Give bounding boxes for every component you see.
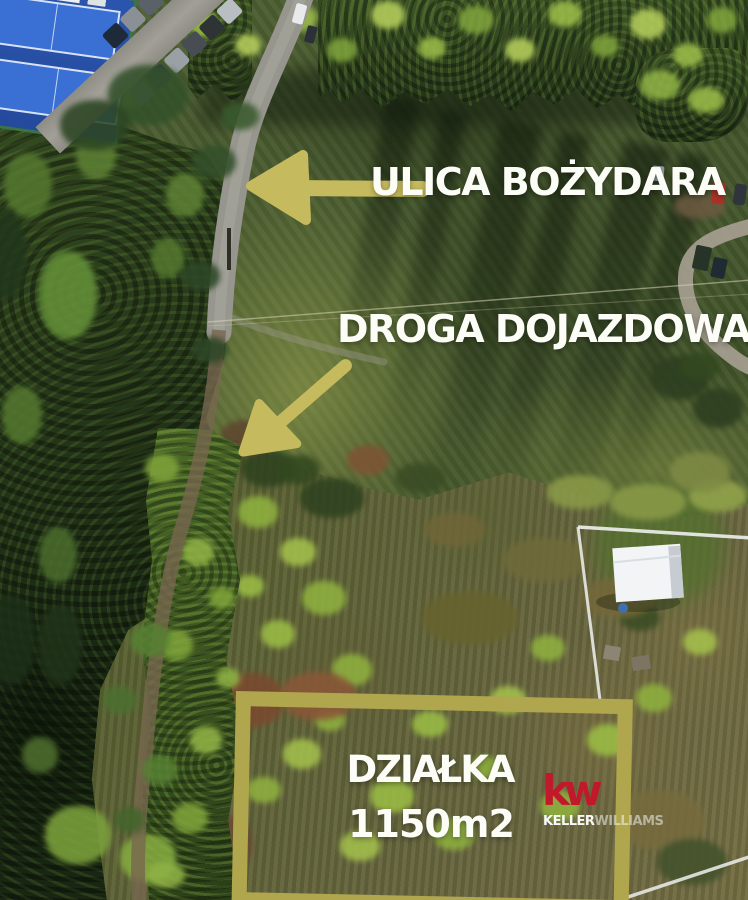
kw-brand-second: WILLIAMS (594, 814, 663, 829)
street-label: ULICA BOŻYDARA (370, 160, 725, 204)
kw-logo-wordmark: KELLERWILLIAMS (543, 814, 663, 829)
plot-label: DZIAŁKA (346, 748, 513, 791)
aerial-photo: ULICA BOŻYDARA DROGA DOJAZDOWA DZIAŁKA 1… (0, 0, 748, 900)
kw-logo-icon: kw (542, 770, 597, 812)
plot-area-label: 1150m2 (348, 802, 514, 846)
kw-brand-first: KELLER (543, 814, 594, 829)
down-left-arrow-icon (226, 344, 363, 473)
keller-williams-logo: kw KELLERWILLIAMS (542, 770, 702, 834)
access-road-label: DROGA DOJAZDOWA (337, 307, 748, 351)
